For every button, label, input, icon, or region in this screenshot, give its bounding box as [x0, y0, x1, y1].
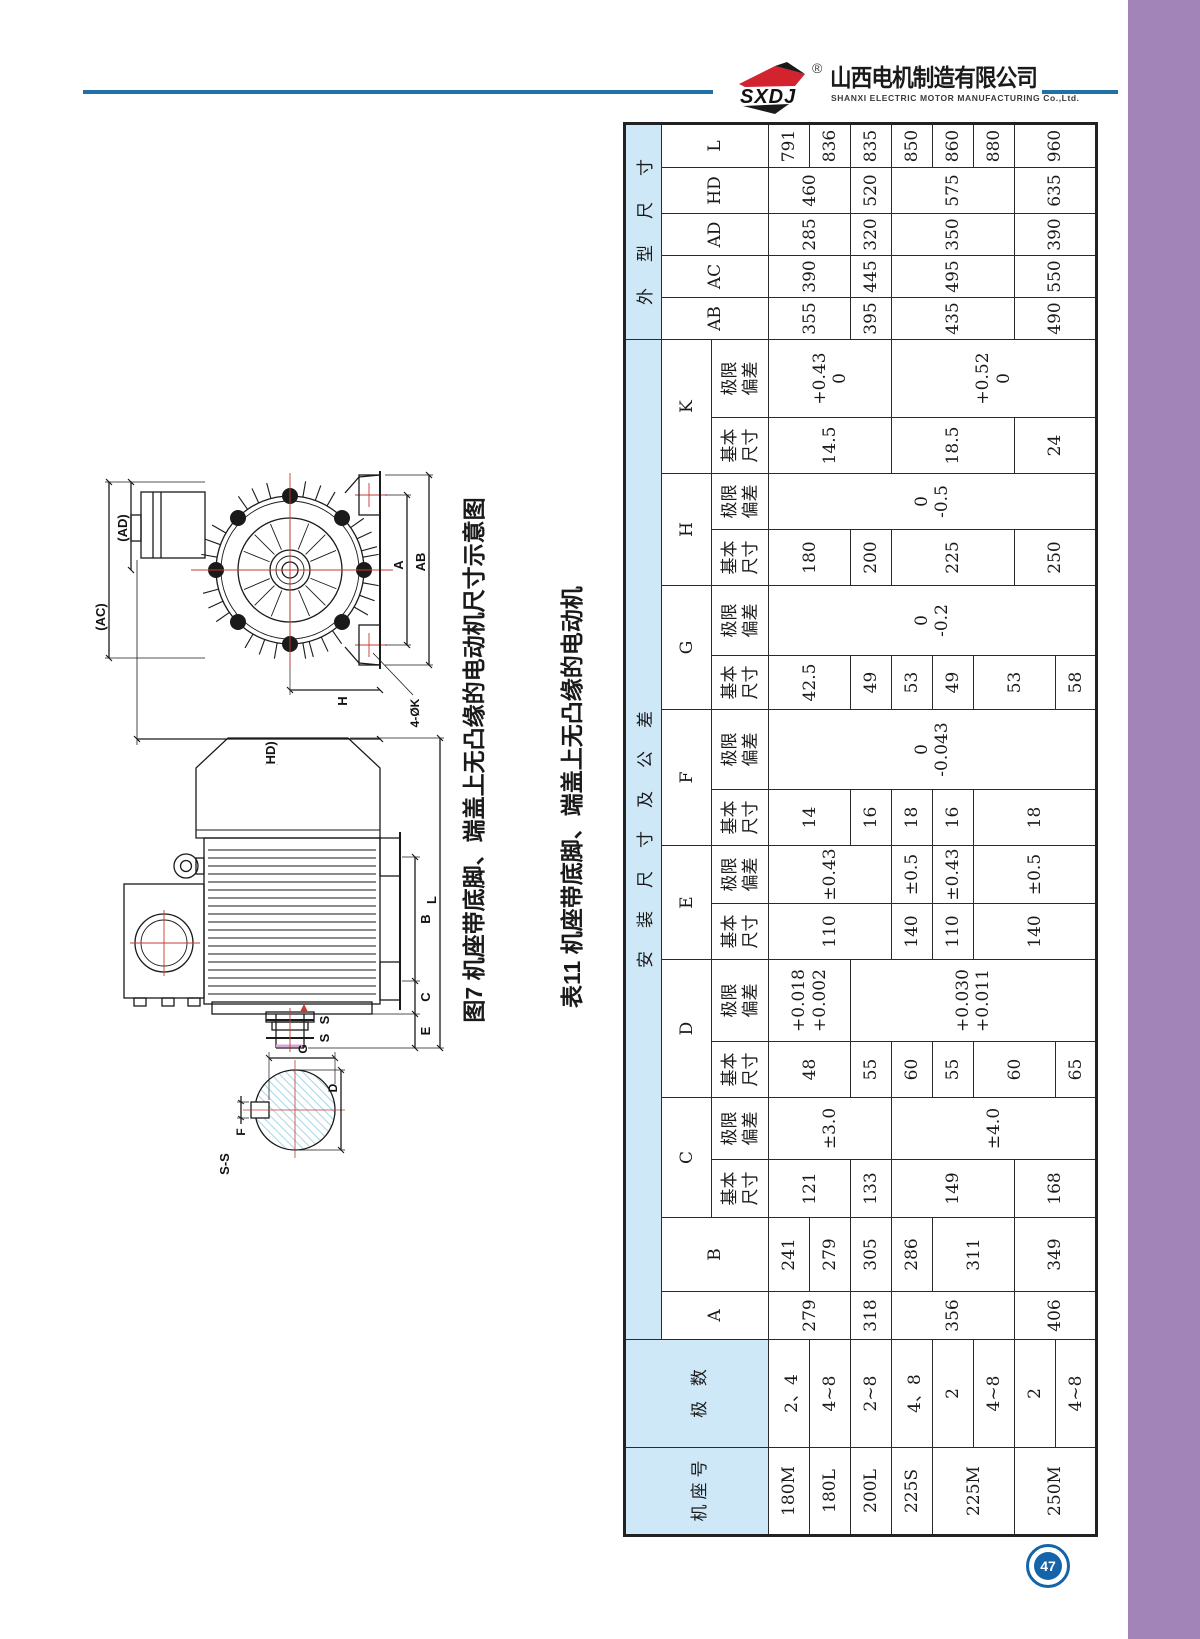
section-mark-s2: S	[317, 1015, 332, 1024]
sub-basic: 基本 尺寸	[712, 530, 769, 586]
logo-text: SXDJ	[740, 86, 796, 108]
dim-cell: +0.030 +0.011	[851, 960, 1097, 1042]
dim-cell: ±0.5	[892, 846, 933, 904]
table11-caption: 表11 机座带底脚、端盖上无凸缘的电动机	[553, 598, 580, 1008]
figure7-caption: 图7 机座带底脚、端盖上无凸缘的电动机尺寸示意图	[455, 488, 482, 1032]
dim-cell: ±4.0	[892, 1098, 1097, 1160]
sub-basic: 基本 尺寸	[712, 418, 769, 474]
poles-cell: 4~8	[1056, 1340, 1097, 1448]
dim-label-ad: (AD)	[115, 514, 130, 541]
dim-cell: 49	[851, 656, 892, 710]
header-poles: 极 数	[625, 1340, 769, 1448]
dim-cell: ±0.43	[933, 846, 974, 904]
side-view-figure: S S E C B L	[110, 710, 450, 1060]
table-header-row: 机座号 极 数 安装尺寸及公差 外型尺寸	[625, 124, 662, 1536]
col-AC: AC	[662, 256, 769, 298]
poles-cell: 2	[1015, 1340, 1056, 1448]
poles-cell: 2、4	[769, 1340, 810, 1448]
dim-cell: 395	[851, 298, 892, 340]
company-name-cn: 山西电机制造有限公司	[830, 58, 1037, 93]
dim-cell: 850	[892, 124, 933, 168]
dim-cell: 390	[769, 256, 851, 298]
sub-basic: 基本 尺寸	[712, 790, 769, 846]
poles-cell: 2	[933, 1340, 974, 1448]
col-HD: HD	[662, 168, 769, 214]
dim-cell: +0.018 +0.002	[769, 960, 851, 1042]
dim-cell: ±0.43	[769, 846, 892, 904]
dim-cell: 318	[851, 1292, 892, 1340]
page: SXDJ ® 山西电机制造有限公司 SHANXI ELECTRIC MOTOR …	[0, 0, 1200, 1639]
dim-label-ac: (AC)	[95, 603, 108, 630]
dim-cell: ±0.5	[974, 846, 1097, 904]
frame-cell: 225S	[892, 1448, 933, 1536]
dim-cell: 635	[1015, 168, 1097, 214]
dim-label-f: F	[234, 1128, 248, 1135]
col-C: C	[662, 1098, 712, 1218]
header-install-group: 安装尺寸及公差	[625, 340, 662, 1340]
sub-limit: 极限 偏差	[712, 474, 769, 530]
poles-cell: 4、8	[892, 1340, 933, 1448]
dim-cell: 791	[769, 124, 810, 168]
registered-icon: ®	[812, 60, 822, 76]
dim-cell: 16	[933, 790, 974, 846]
table-row: 180M 2、4 279 241 121 ±3.0 48 +0.018 +0.0…	[769, 124, 810, 1536]
col-F: F	[662, 710, 712, 846]
dim-label-h: H	[335, 696, 350, 705]
dim-cell: 435	[892, 298, 1015, 340]
dim-cell: 55	[851, 1042, 892, 1098]
section-view-figure: S-S F G D	[215, 1040, 350, 1180]
dim-cell: 960	[1015, 124, 1097, 168]
dim-cell: 550	[1015, 256, 1097, 298]
section-title: S-S	[217, 1153, 232, 1175]
dim-cell: 390	[1015, 214, 1097, 256]
right-sidebar	[1128, 0, 1200, 1639]
dim-cell: 860	[933, 124, 974, 168]
dim-label-l: L	[424, 896, 439, 904]
dim-cell: +0.43 0	[769, 340, 892, 418]
col-A: A	[662, 1292, 769, 1340]
dim-cell: 110	[769, 904, 892, 960]
col-AB: AB	[662, 298, 769, 340]
dim-cell: 490	[1015, 298, 1097, 340]
dim-label-c: C	[418, 992, 433, 1002]
dim-cell: 0 -0.2	[769, 586, 1097, 656]
col-H: H	[662, 474, 712, 586]
dim-label-a: A	[391, 560, 406, 570]
dim-cell: 55	[933, 1042, 974, 1098]
header-outline-group: 外型尺寸	[625, 124, 662, 340]
col-L: L	[662, 124, 769, 168]
dim-cell: 350	[892, 214, 1015, 256]
page-number: 47	[1034, 1552, 1062, 1580]
page-number-badge: 47	[1026, 1544, 1070, 1588]
frame-cell: 250M	[1015, 1448, 1097, 1536]
dim-cell: 60	[974, 1042, 1056, 1098]
frame-cell: 200L	[851, 1448, 892, 1536]
dim-cell: 65	[1056, 1042, 1097, 1098]
dim-cell: 200	[851, 530, 892, 586]
dim-cell: 110	[933, 904, 974, 960]
table-row: 225S 4、8 356 286 149 ±4.0 60 140 ±0.5 18…	[892, 124, 933, 1536]
sub-basic: 基本 尺寸	[712, 1042, 769, 1098]
frame-cell: 225M	[933, 1448, 1015, 1536]
dim-cell: 58	[1056, 656, 1097, 710]
dim-cell: 356	[892, 1292, 1015, 1340]
col-D: D	[662, 960, 712, 1098]
dim-cell: 241	[769, 1218, 810, 1292]
dim-cell: 140	[974, 904, 1097, 960]
dim-cell: 520	[851, 168, 892, 214]
sub-limit: 极限 偏差	[712, 960, 769, 1042]
col-AD: AD	[662, 214, 769, 256]
dim-cell: 355	[769, 298, 851, 340]
dim-cell: 305	[851, 1218, 892, 1292]
dim-cell: 495	[892, 256, 1015, 298]
dim-cell: 14	[769, 790, 851, 846]
company-name-en: SHANXI ELECTRIC MOTOR MANUFACTURING Co.,…	[831, 93, 1080, 103]
sxdj-logo-mark: SXDJ	[731, 60, 813, 118]
sub-basic: 基本 尺寸	[712, 1160, 769, 1218]
dim-cell: 311	[933, 1218, 1015, 1292]
dim-cell: 320	[851, 214, 892, 256]
sub-basic: 基本 尺寸	[712, 656, 769, 710]
dim-cell: 168	[1015, 1160, 1097, 1218]
dim-cell: 60	[892, 1042, 933, 1098]
frame-cell: 180M	[769, 1448, 810, 1536]
dim-cell: 16	[851, 790, 892, 846]
dim-cell: 18.5	[892, 418, 1015, 474]
col-B: B	[662, 1218, 769, 1292]
dim-label-ab: AB	[413, 553, 428, 572]
sub-limit: 极限 偏差	[712, 710, 769, 790]
dim-cell: 49	[933, 656, 974, 710]
dim-label-d: D	[326, 1083, 340, 1092]
dim-cell: 53	[974, 656, 1056, 710]
header-frame: 机座号	[625, 1448, 769, 1536]
dim-cell: 279	[769, 1292, 851, 1340]
dim-label-g: G	[296, 1044, 310, 1053]
col-E: E	[662, 846, 712, 960]
dim-cell: 250	[1015, 530, 1097, 586]
dim-cell: 24	[1015, 418, 1097, 474]
dim-label-e: E	[418, 1026, 433, 1035]
dim-cell: 48	[769, 1042, 851, 1098]
dim-cell: 180	[769, 530, 851, 586]
dim-cell: 225	[892, 530, 1015, 586]
dim-cell: 121	[769, 1160, 851, 1218]
dim-cell: 42.5	[769, 656, 851, 710]
dim-cell: 53	[892, 656, 933, 710]
dim-cell: 14.5	[769, 418, 892, 474]
dim-cell: 836	[810, 124, 851, 168]
dim-cell: 880	[974, 124, 1015, 168]
poles-cell: 4~8	[974, 1340, 1015, 1448]
dim-cell: +0.52 0	[892, 340, 1097, 418]
dim-cell: 149	[892, 1160, 1015, 1218]
sub-limit: 极限 偏差	[712, 340, 769, 418]
dim-cell: 18	[892, 790, 933, 846]
dim-cell: 286	[892, 1218, 933, 1292]
dimension-table: 机座号 极 数 安装尺寸及公差 外型尺寸 A B C D E F G H K A…	[623, 122, 1098, 1537]
col-K: K	[662, 340, 712, 474]
dim-cell: 835	[851, 124, 892, 168]
dim-cell: 349	[1015, 1218, 1097, 1292]
dim-cell: ±3.0	[769, 1098, 892, 1160]
dim-cell: 140	[892, 904, 933, 960]
header-rule-left	[83, 90, 713, 94]
dim-cell: 460	[769, 168, 851, 214]
dim-cell: 18	[974, 790, 1097, 846]
sub-limit: 极限 偏差	[712, 1098, 769, 1160]
col-G: G	[662, 586, 712, 710]
dim-cell: 575	[892, 168, 1015, 214]
sub-limit: 极限 偏差	[712, 586, 769, 656]
dim-cell: 0 -0.043	[769, 710, 1097, 790]
dim-cell: 0 -0.5	[769, 474, 1097, 530]
dim-cell: 279	[810, 1218, 851, 1292]
table-header-row: A B C D E F G H K AB AC AD HD L	[662, 124, 712, 1536]
dim-label-b: B	[418, 914, 433, 923]
poles-cell: 2~8	[851, 1340, 892, 1448]
dim-cell: 133	[851, 1160, 892, 1218]
dim-cell: 445	[851, 256, 892, 298]
poles-cell: 4~8	[810, 1340, 851, 1448]
sub-basic: 基本 尺寸	[712, 904, 769, 960]
dim-cell: 285	[769, 214, 851, 256]
dim-cell: 406	[1015, 1292, 1097, 1340]
frame-cell: 180L	[810, 1448, 851, 1536]
dimension-table-wrap: 机座号 极 数 安装尺寸及公差 外型尺寸 A B C D E F G H K A…	[623, 125, 1099, 1537]
table-row: 200L 2~8 318 305 133 55 +0.030 +0.011 16…	[851, 124, 892, 1536]
sub-limit: 极限 偏差	[712, 846, 769, 904]
